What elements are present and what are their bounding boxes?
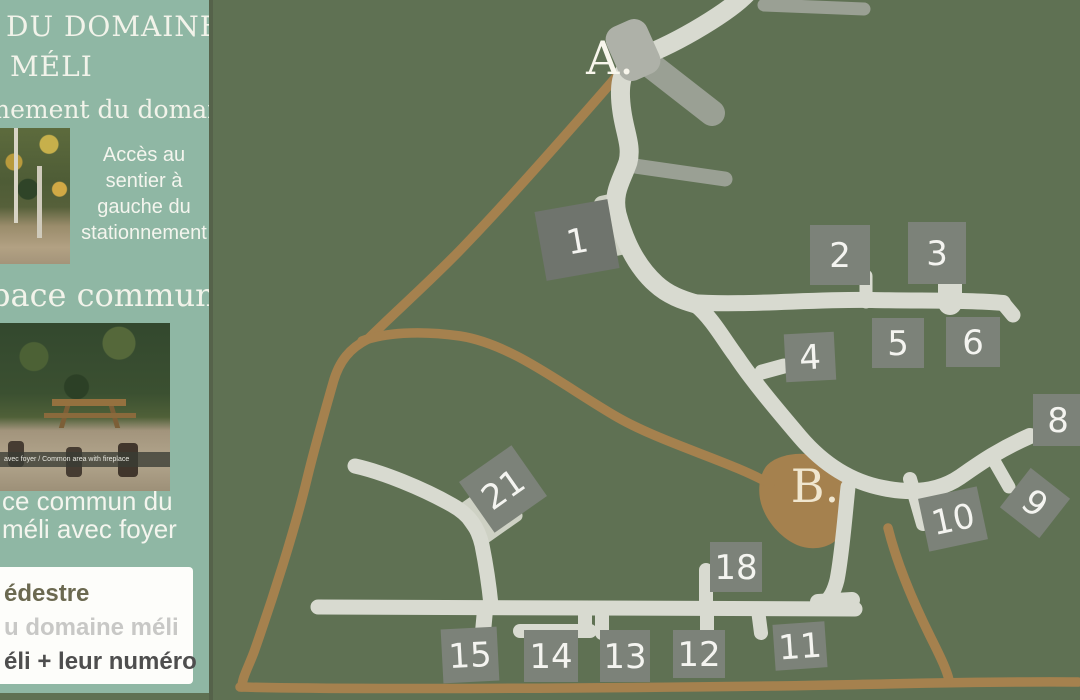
gravel-driveway-stubs xyxy=(635,5,864,179)
trail-sign-post xyxy=(37,166,42,238)
common-area-heading: pace commun xyxy=(0,276,212,314)
site-marker-5: 5 xyxy=(872,318,924,368)
tree-trunk-shape xyxy=(14,128,18,223)
site-marker-11: 11 xyxy=(772,621,827,671)
svg-text:3: 3 xyxy=(926,234,948,274)
site-marker-14: 14 xyxy=(524,630,578,682)
common-area-photo: avec foyer / Common area with fireplace xyxy=(0,323,170,491)
svg-text:8: 8 xyxy=(1047,401,1069,441)
map-label-b: B. xyxy=(791,459,839,513)
site-marker-13: 13 xyxy=(600,630,650,682)
parking-access-note: Accès au sentier à gauche du stationneme… xyxy=(76,142,212,246)
picnic-table-bench xyxy=(44,413,136,418)
map-title-line1: DU DOMAINE xyxy=(6,10,212,43)
parking-trail-photo xyxy=(0,128,70,264)
map-label-a: A. xyxy=(585,31,634,85)
site-map: 1 2 3 4 5 6 8 9 10 11 12 13 14 15 18 21 … xyxy=(212,0,1080,700)
site-marker-1: 1 xyxy=(534,199,619,281)
picnic-table-top xyxy=(52,399,126,406)
map-subtitle: nement du domaine xyxy=(0,95,212,124)
svg-text:2: 2 xyxy=(829,236,851,276)
legend-item-sites: éli + leur numéro xyxy=(4,645,193,679)
site-marker-8: 8 xyxy=(1033,394,1080,446)
site-marker-15: 15 xyxy=(441,627,500,684)
map-title-line2: MÉLI xyxy=(10,50,93,83)
svg-text:11: 11 xyxy=(777,626,823,669)
legend-item-trail: édestre xyxy=(4,577,193,611)
sidebar-panel: DU DOMAINE MÉLI nement du domaine Accès … xyxy=(0,0,212,693)
site-marker-6: 6 xyxy=(946,317,1000,367)
site-marker-2: 2 xyxy=(810,225,870,285)
site-marker-12: 12 xyxy=(673,630,725,678)
sidebar-map-divider xyxy=(209,0,213,700)
site-marker-3: 3 xyxy=(908,222,966,284)
svg-text:15: 15 xyxy=(447,635,492,677)
common-area-note-line2: méli avec foyer xyxy=(2,514,177,545)
svg-text:4: 4 xyxy=(798,337,822,378)
common-area-note-line1: ce commun du xyxy=(2,486,173,517)
svg-text:5: 5 xyxy=(887,324,909,364)
site-marker-4: 4 xyxy=(784,332,836,383)
svg-text:6: 6 xyxy=(962,323,984,363)
legend-item-road: u domaine méli xyxy=(4,611,193,645)
svg-text:18: 18 xyxy=(714,548,757,588)
svg-text:13: 13 xyxy=(603,637,646,677)
svg-text:12: 12 xyxy=(677,635,720,675)
site-marker-18: 18 xyxy=(710,542,762,592)
svg-text:14: 14 xyxy=(529,637,572,677)
photo-caption: avec foyer / Common area with fireplace xyxy=(0,452,170,467)
legend-box: édestre u domaine méli éli + leur numéro xyxy=(0,567,193,684)
